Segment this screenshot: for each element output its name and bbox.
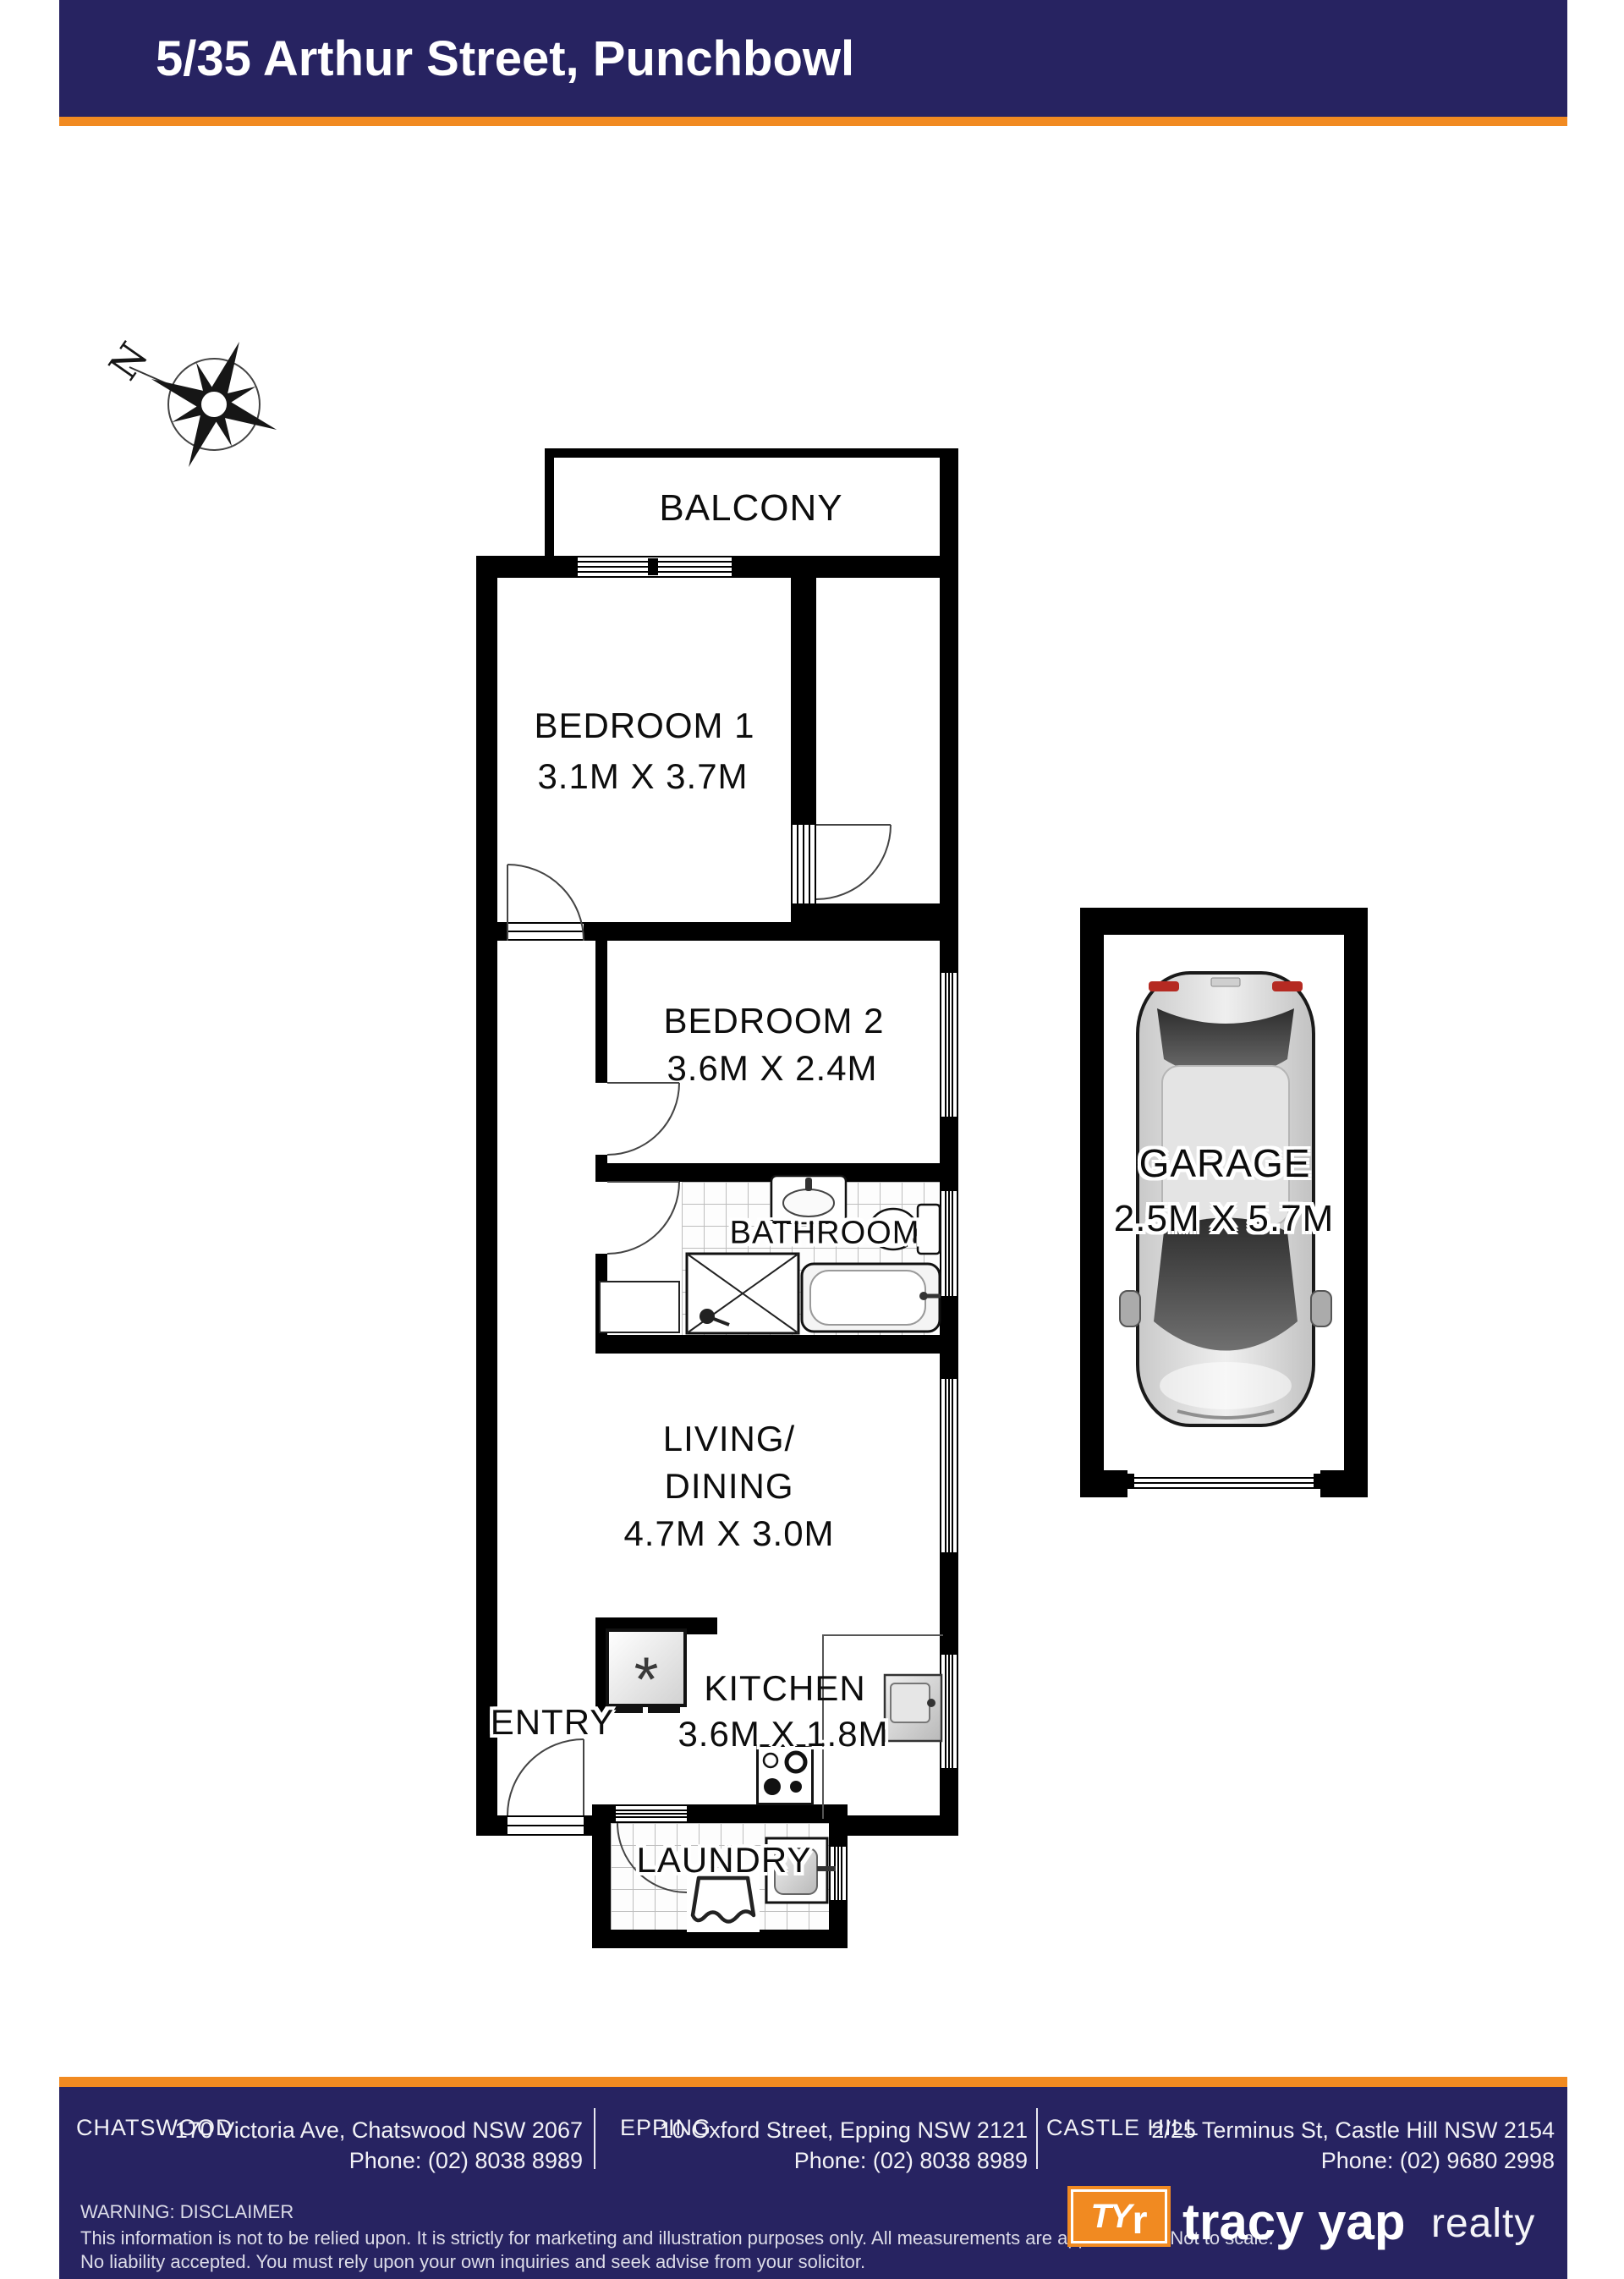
brand-suffix: realty <box>1431 2200 1535 2247</box>
logo-ty-monogram: TY <box>1090 2198 1130 2236</box>
logo-r-monogram: r <box>1133 2197 1148 2243</box>
plan-graphics: N <box>0 0 1624 2279</box>
office-address-line: 170 Victoria Ave, Chatswood NSW 2067 <box>175 2115 583 2145</box>
label-kitchen: KITCHEN <box>704 1668 865 1709</box>
label-garage: GARAGE <box>1139 1140 1311 1186</box>
bathroom-fixtures <box>687 1176 941 1333</box>
label-garage-dims: 2.5M X 5.7M <box>1114 1198 1334 1240</box>
compass-north-label: N <box>100 334 156 388</box>
label-bedroom1-dims: 3.1M X 3.7M <box>537 756 748 797</box>
office-address-epping: 10 Oxford Street, Epping NSW 2121 Phone:… <box>660 2115 1028 2176</box>
tracy-yap-logo: TY r <box>1071 2189 1167 2243</box>
office-address-castle-hill: 2/25 Terminus St, Castle Hill NSW 2154 P… <box>1151 2115 1555 2176</box>
label-entry: ENTRY <box>491 1702 615 1743</box>
label-living-dims: 4.7M X 3.0M <box>623 1513 834 1554</box>
office-address-line: 10 Oxford Street, Epping NSW 2121 <box>660 2115 1028 2145</box>
floorplan-page: { "header": { "title": "5/35 Arthur Stre… <box>0 0 1624 2279</box>
office-phone: Phone: (02) 9680 2998 <box>1151 2145 1555 2176</box>
label-bedroom2: BEDROOM 2 <box>663 1001 884 1041</box>
footer-divider <box>594 2108 595 2169</box>
label-living-line1: LIVING/ <box>663 1419 795 1459</box>
label-bedroom2-dims: 3.6M X 2.4M <box>667 1048 877 1089</box>
office-phone: Phone: (02) 8038 8989 <box>660 2145 1028 2176</box>
label-kitchen-dims: 3.6M X 1.8M <box>678 1714 888 1755</box>
office-address-line: 2/25 Terminus St, Castle Hill NSW 2154 <box>1151 2115 1555 2145</box>
office-phone: Phone: (02) 8038 8989 <box>175 2145 583 2176</box>
footer-accent-stripe <box>59 2077 1567 2087</box>
label-balcony: BALCONY <box>659 487 842 530</box>
compass-rose: N <box>100 316 302 492</box>
floor-plan: * <box>0 0 1624 2279</box>
label-bathroom: BATHROOM <box>730 1216 920 1252</box>
brand-name: tracy yap <box>1182 2193 1406 2251</box>
label-living-line2: DINING <box>665 1466 794 1507</box>
label-bedroom1: BEDROOM 1 <box>534 706 754 746</box>
disclaimer-line2: No liability accepted. You must rely upo… <box>80 2251 865 2273</box>
office-address-chatswood: 170 Victoria Ave, Chatswood NSW 2067 Pho… <box>175 2115 583 2176</box>
disclaimer-title: WARNING: DISCLAIMER <box>80 2201 294 2223</box>
label-laundry: LAUNDRY <box>637 1840 812 1881</box>
footer-divider <box>1036 2108 1038 2169</box>
